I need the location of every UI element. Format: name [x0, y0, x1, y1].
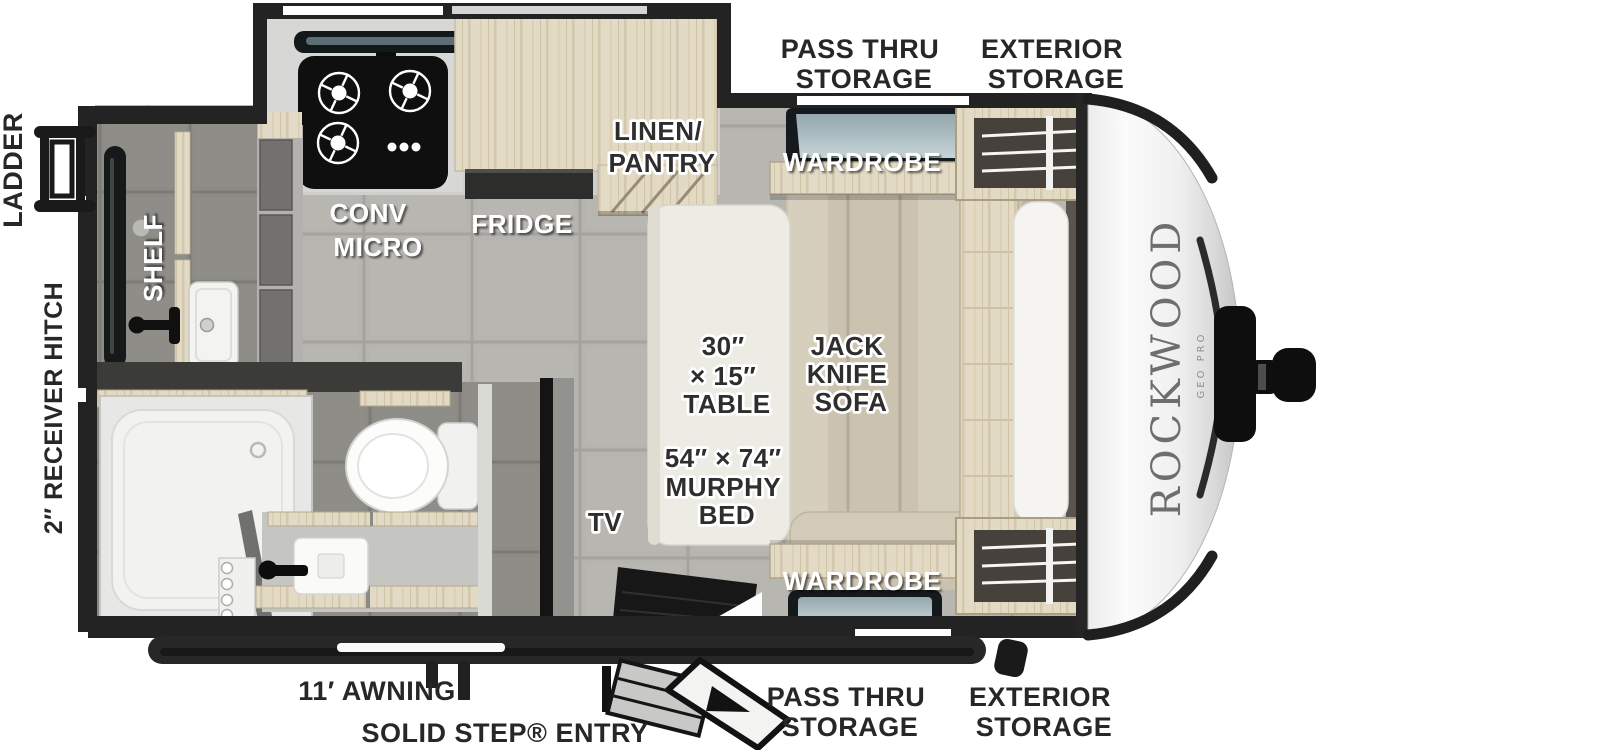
floorplan-svg: ROCKWOOD GEO PRO: [0, 0, 1600, 750]
tv-screen: [540, 378, 553, 625]
label-receiver-hitch: 2″ RECEIVER HITCH: [40, 282, 68, 534]
fridge-front: [465, 169, 593, 199]
label-ladder: LADDER: [0, 112, 28, 228]
hitch-coupler: [1272, 348, 1316, 402]
label-wardrobe-top: WARDROBE: [783, 147, 942, 177]
tv-partition: [553, 378, 574, 625]
slide-wall-right: [717, 3, 731, 106]
top-wall-left: [78, 106, 260, 124]
toilet: [346, 419, 478, 513]
label-pass-thru-storage-bottom: PASS THRU STORAGE: [767, 682, 934, 742]
fridge-edge: [465, 169, 593, 173]
cooktop-knobs: [388, 143, 421, 152]
label-exterior-storage-bottom: EXTERIOR STORAGE: [969, 682, 1119, 742]
mattress: [1014, 202, 1068, 524]
vanity: [256, 512, 480, 612]
label-entry: SOLID STEP® ENTRY: [362, 718, 649, 748]
front-bed: [960, 196, 1082, 530]
floorplan-image: ROCKWOOD GEO PRO: [0, 0, 1600, 750]
label-awning: 11′ AWNING: [298, 676, 456, 706]
label-pass-thru-storage-top: PASS THRU STORAGE: [781, 34, 948, 94]
kitchen-cabinet-column: [257, 112, 303, 382]
cooktop: [298, 56, 448, 189]
vanity-faucet-base: [259, 561, 278, 580]
brand-sub-logo: GEO PRO: [1196, 332, 1207, 399]
slide-wall-left: [253, 3, 267, 124]
label-exterior-storage-top: EXTERIOR STORAGE: [981, 34, 1131, 94]
label-jack-knife-sofa: JACK KNIFE SOFA: [807, 331, 895, 417]
brand-logo: ROCKWOOD: [1144, 217, 1190, 518]
label-wardrobe-bottom: WARDROBE: [783, 566, 942, 596]
label-shelf: SHELF: [138, 214, 168, 302]
awning-stripe: [337, 643, 505, 652]
bath-wall-edge: [478, 384, 492, 624]
shelf-board-1: [175, 132, 190, 254]
tv-wall: [540, 378, 574, 625]
shower-glass-highlight: [110, 158, 114, 354]
awning-arm-2: [458, 662, 470, 700]
label-fridge: FRIDGE: [471, 209, 572, 239]
vanity-sink-detail: [318, 554, 344, 578]
shower-glass: [104, 146, 126, 368]
label-tv: TV: [588, 507, 622, 537]
bath-sink-drain: [201, 319, 214, 332]
